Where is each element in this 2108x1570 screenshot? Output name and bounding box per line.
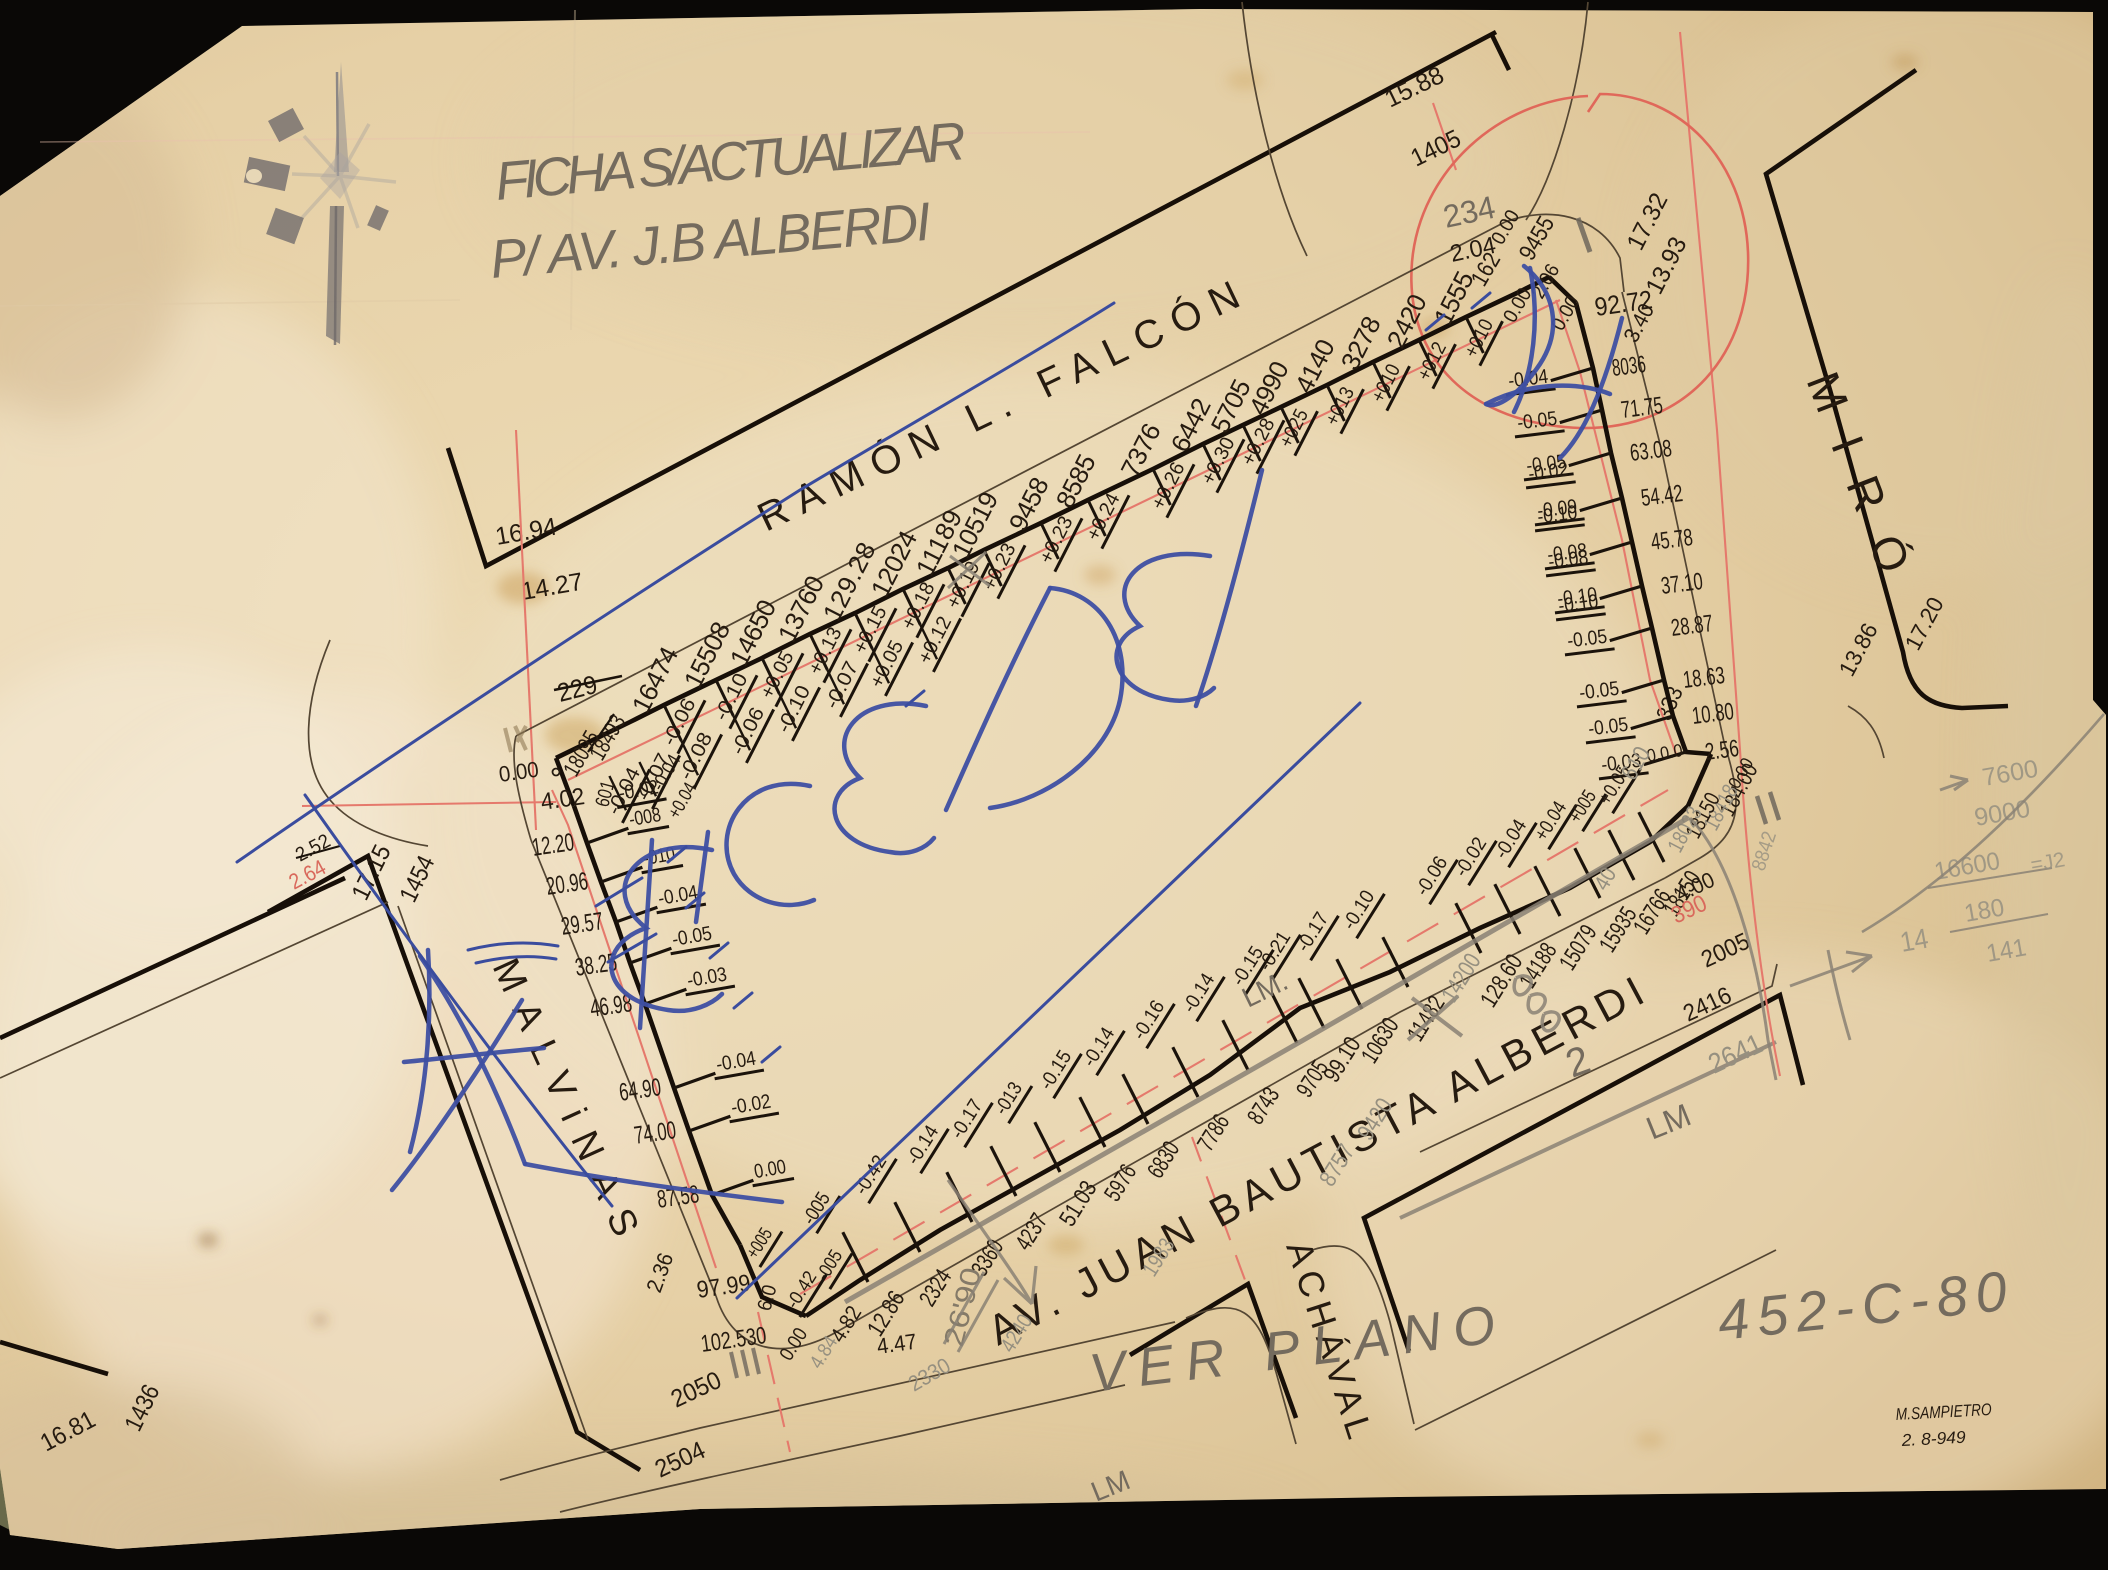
svg-text:8036: 8036 bbox=[1610, 351, 1647, 382]
svg-text:45.78: 45.78 bbox=[1649, 524, 1694, 556]
svg-text:64.90: 64.90 bbox=[617, 1073, 662, 1107]
svg-text:18.63: 18.63 bbox=[1681, 662, 1726, 694]
svg-text:10.80: 10.80 bbox=[1690, 698, 1735, 730]
svg-text:54.42: 54.42 bbox=[1639, 480, 1684, 512]
svg-text:29.57: 29.57 bbox=[559, 907, 604, 941]
svg-text:14: 14 bbox=[1898, 923, 1931, 958]
svg-text:2.56: 2.56 bbox=[1703, 735, 1740, 766]
svg-text:63.08: 63.08 bbox=[1628, 435, 1673, 467]
svg-text:37.10: 37.10 bbox=[1659, 568, 1704, 600]
svg-text:2. 8-949: 2. 8-949 bbox=[1900, 1428, 1966, 1450]
svg-text:74.00: 74.00 bbox=[632, 1116, 677, 1150]
svg-text:28.87: 28.87 bbox=[1669, 610, 1714, 642]
svg-text:20.96: 20.96 bbox=[544, 867, 589, 901]
svg-text:12.20: 12.20 bbox=[530, 828, 575, 862]
svg-text:71.75: 71.75 bbox=[1619, 392, 1664, 424]
